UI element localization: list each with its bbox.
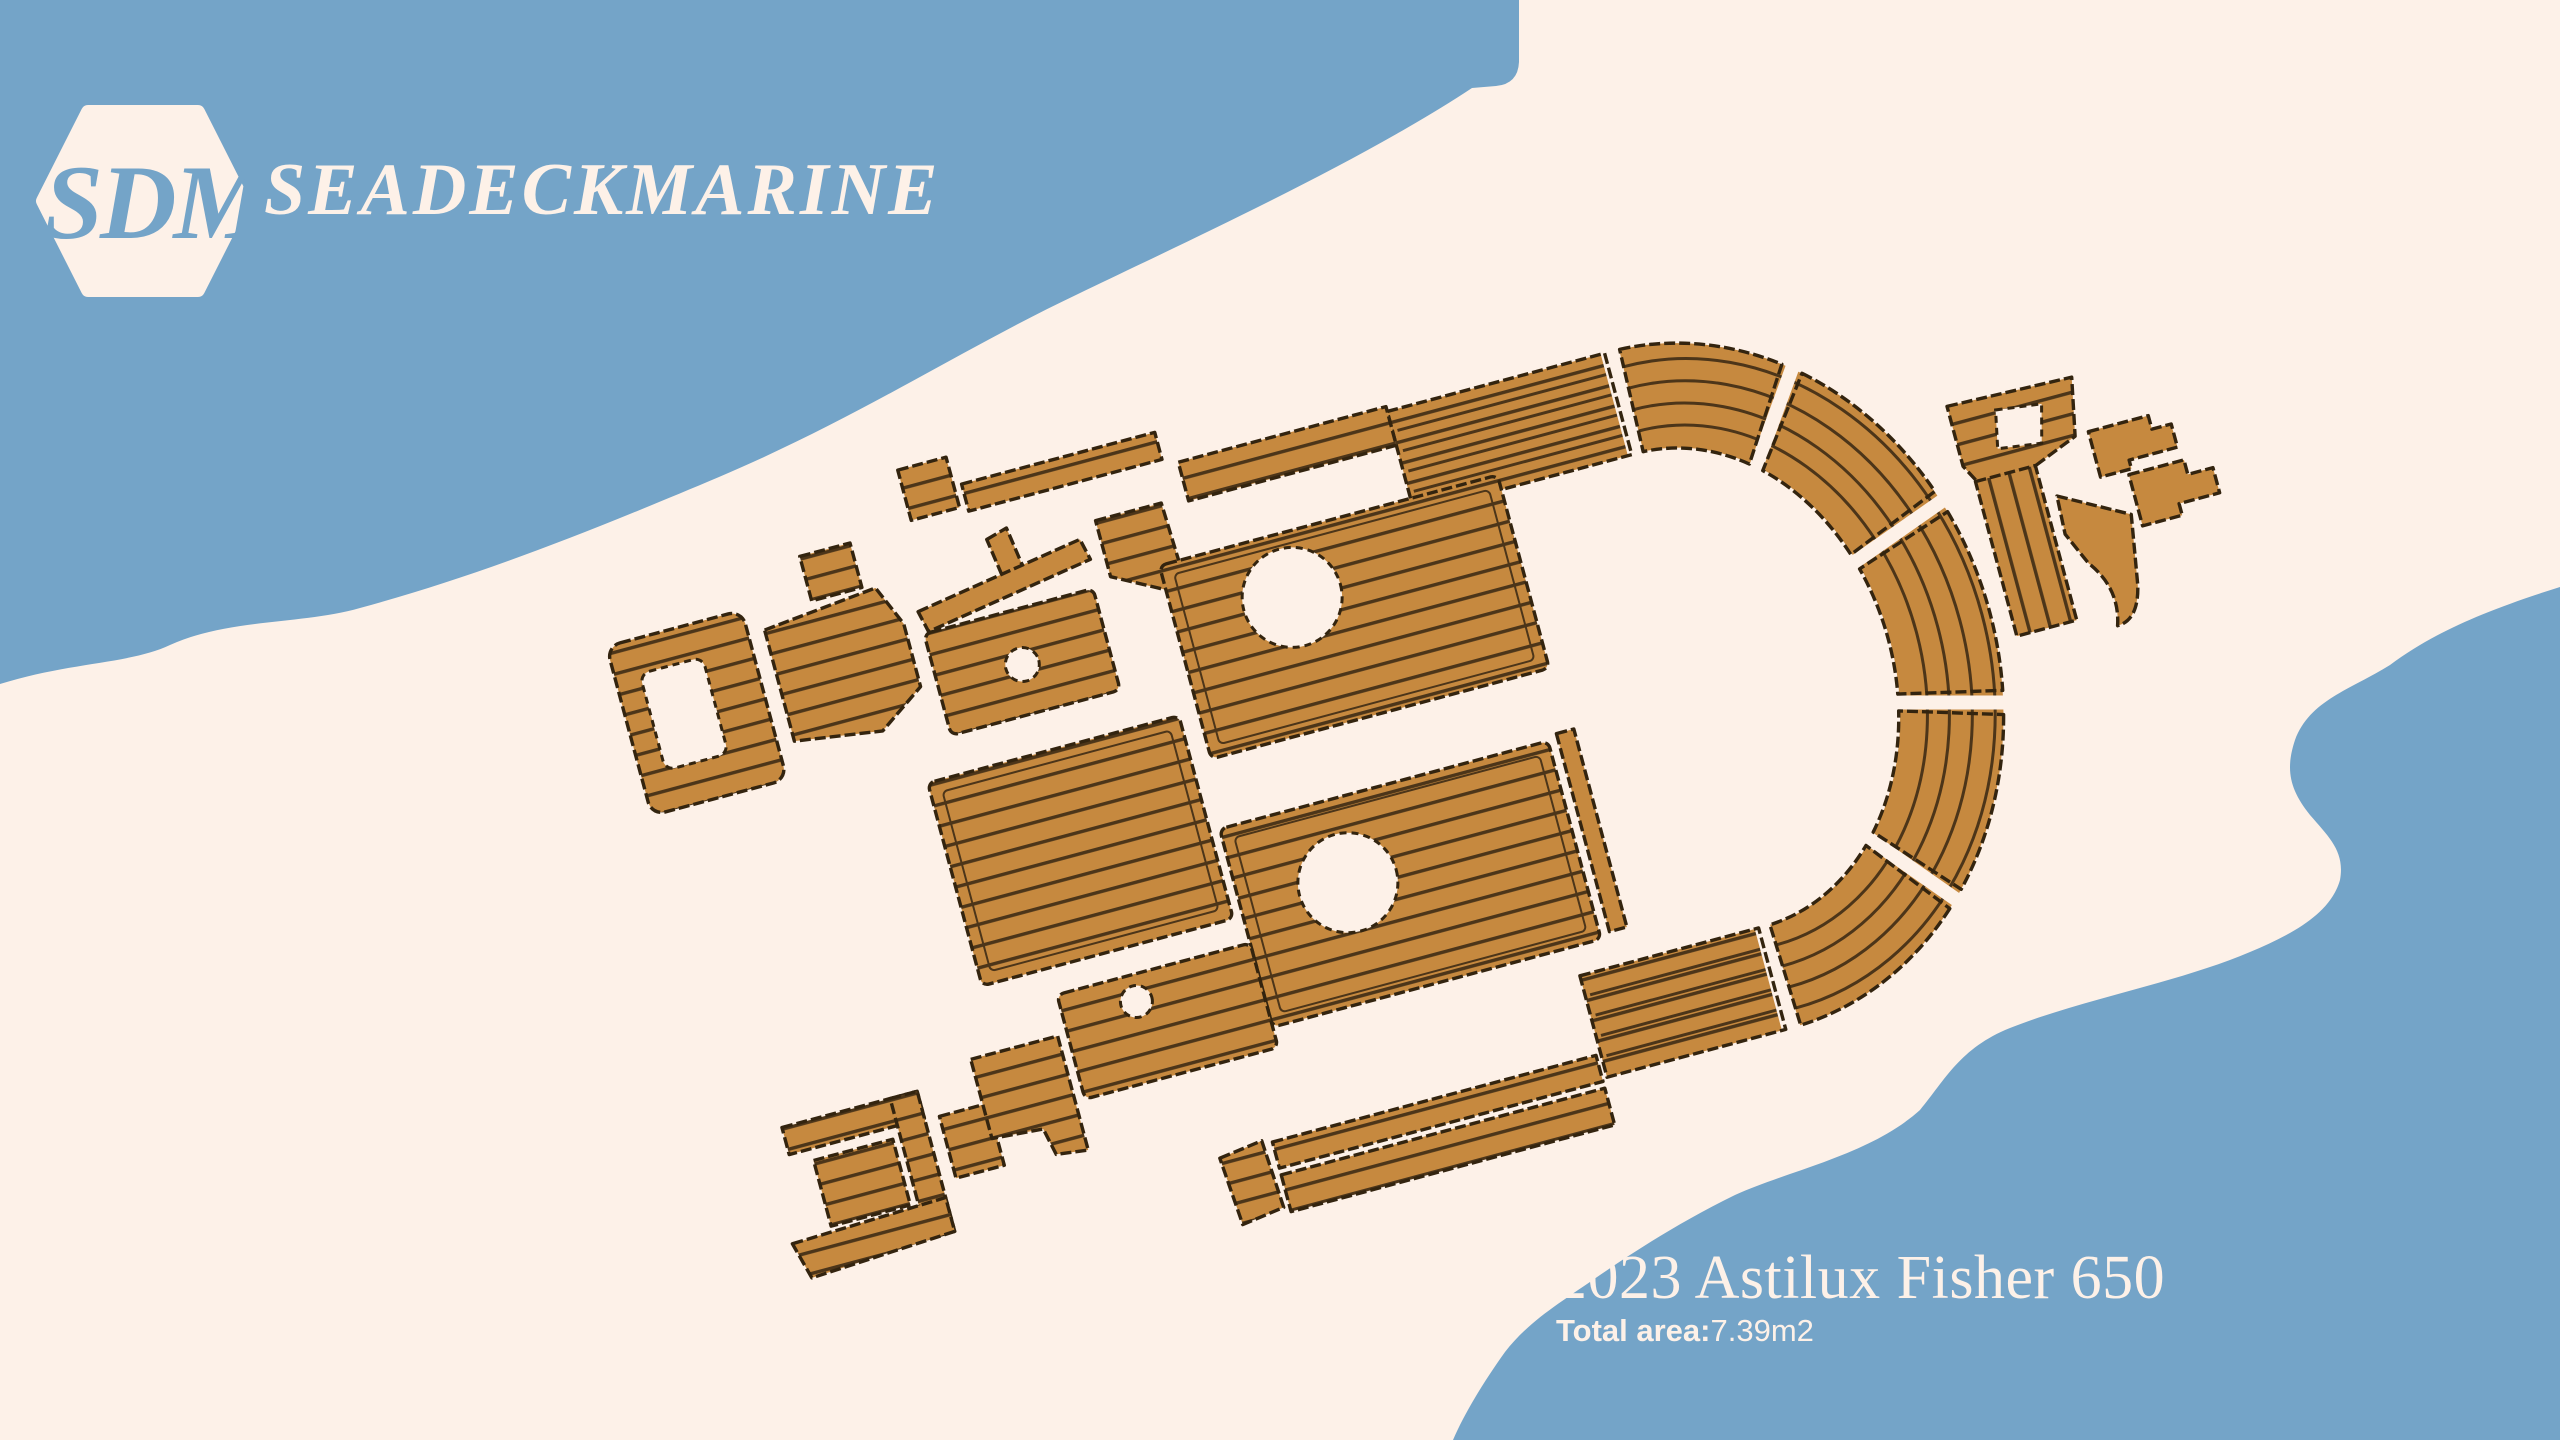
product-title: 2023 Astilux Fisher 650 bbox=[1556, 1246, 2165, 1311]
page: SDM SEADECKMARINE 2023 Astilux Fisher 65… bbox=[0, 0, 2560, 1440]
total-area-value: 7.39m2 bbox=[1710, 1313, 1813, 1348]
logo-monogram: SDM bbox=[44, 144, 272, 261]
total-area: Total area:7.39m2 bbox=[1556, 1313, 2165, 1349]
product-info: 2023 Astilux Fisher 650 Total area:7.39m… bbox=[1556, 1246, 2165, 1349]
brand-name: SEADECKMARINE bbox=[264, 148, 941, 233]
bow-tip-pads bbox=[1947, 344, 2246, 654]
stern-platform-pads bbox=[597, 535, 935, 816]
transom-pads bbox=[758, 1036, 1101, 1280]
bottom-gunwale-strips bbox=[1218, 1051, 1614, 1225]
sdm-logo: SDM bbox=[28, 98, 278, 308]
total-area-label: Total area: bbox=[1556, 1313, 1710, 1348]
